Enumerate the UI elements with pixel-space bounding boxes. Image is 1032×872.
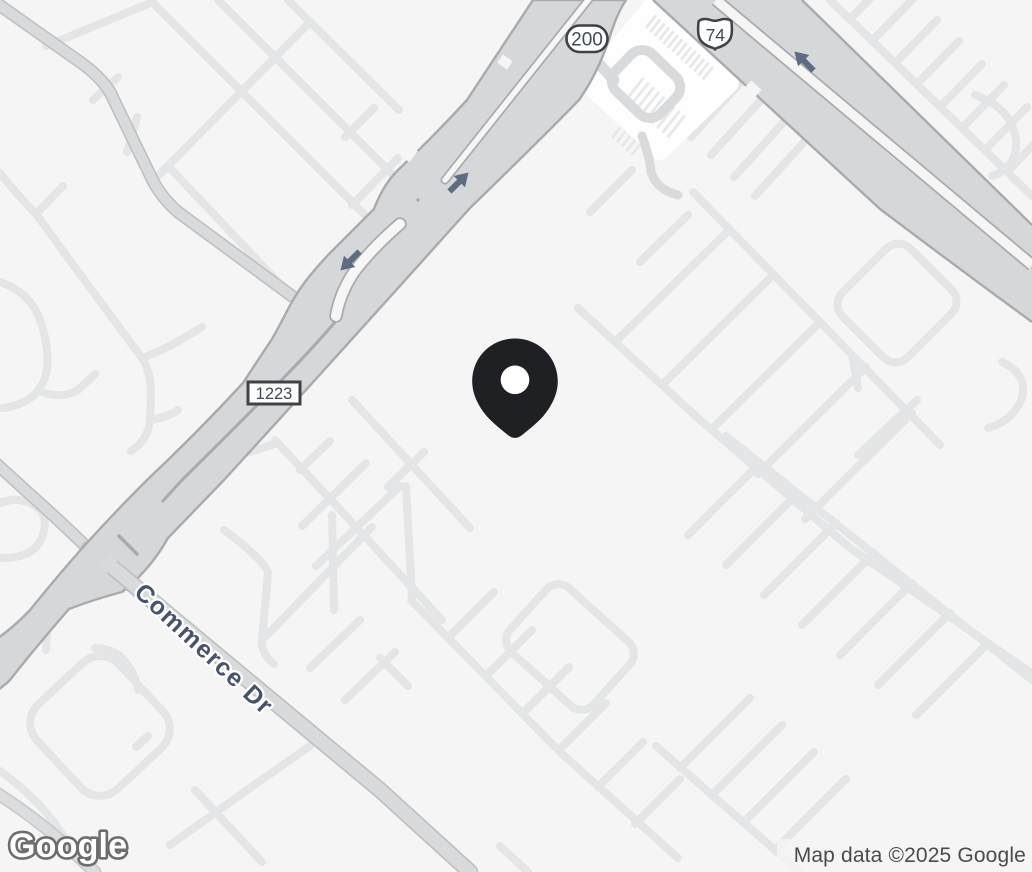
svg-text:Map data ©2025 Google: Map data ©2025 Google — [794, 844, 1026, 867]
svg-text:200: 200 — [571, 30, 603, 51]
svg-text:1223: 1223 — [256, 385, 293, 403]
svg-text:74: 74 — [706, 25, 726, 45]
svg-text:Google: Google — [9, 827, 127, 865]
